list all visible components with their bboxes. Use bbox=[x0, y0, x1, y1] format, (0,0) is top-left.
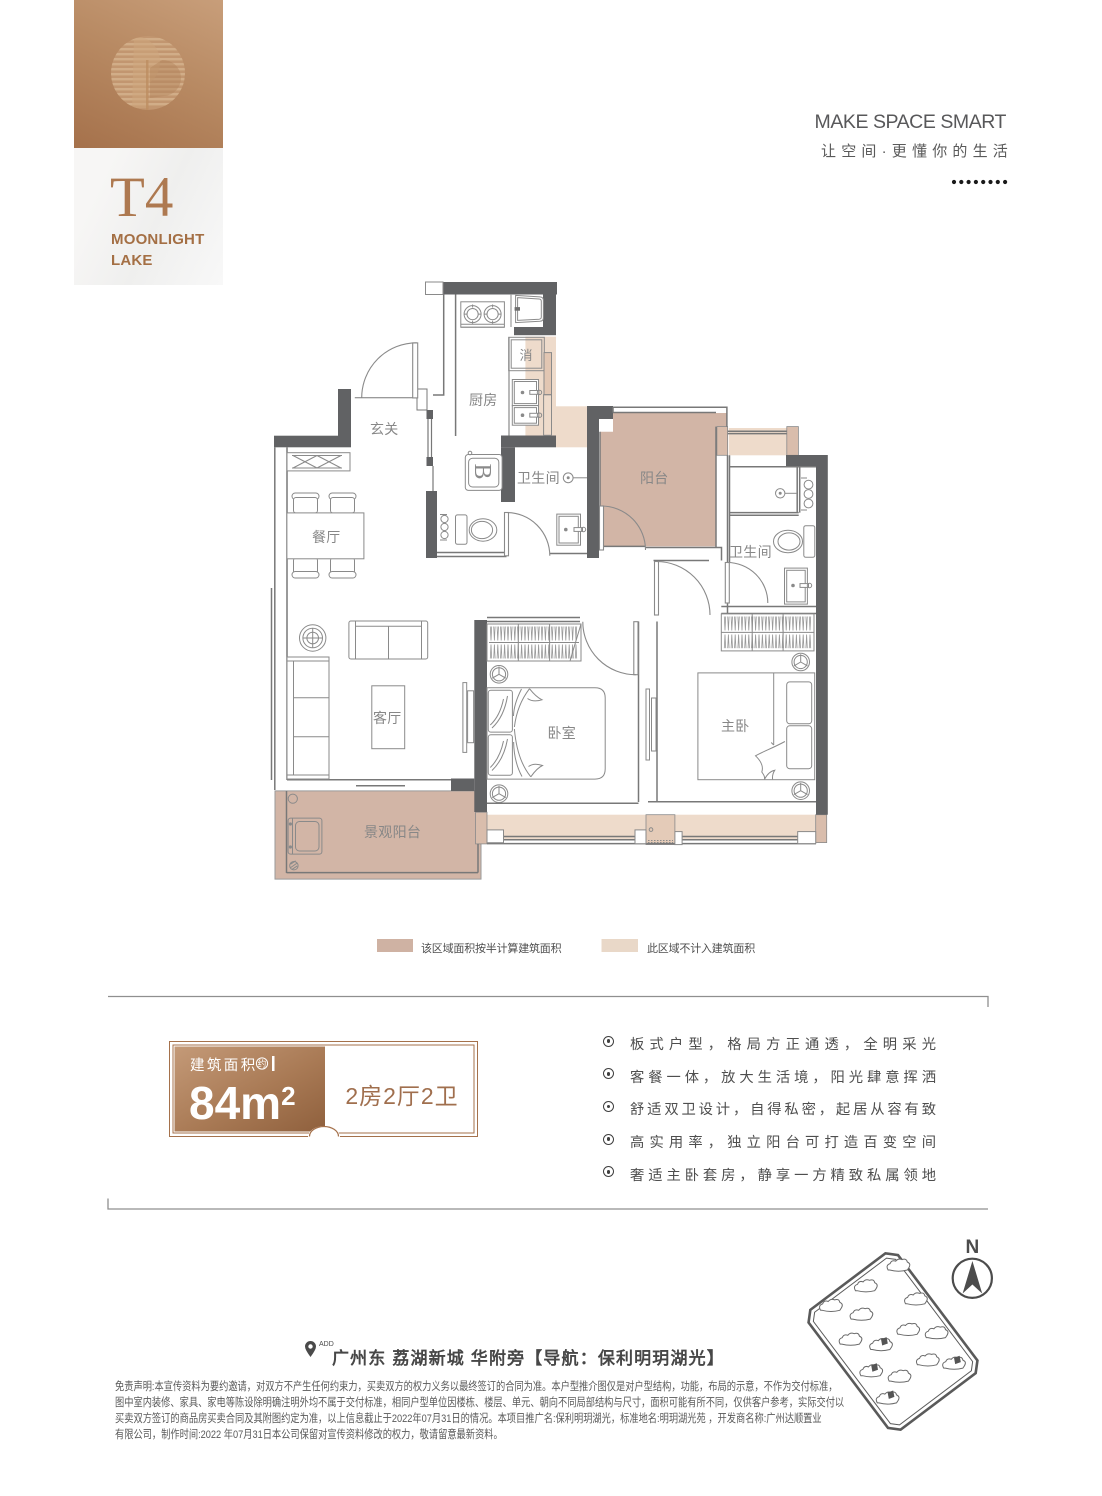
svg-text:阳台: 阳台 bbox=[640, 470, 669, 486]
svg-text:N: N bbox=[966, 1237, 980, 1258]
svg-text:B: B bbox=[469, 463, 495, 479]
svg-text:客厅: 客厅 bbox=[373, 710, 402, 726]
svg-text:主卧: 主卧 bbox=[721, 718, 750, 734]
svg-text:餐厅: 餐厅 bbox=[312, 529, 341, 545]
svg-text:约: 约 bbox=[258, 1059, 267, 1069]
svg-text:卫生间: 卫生间 bbox=[517, 470, 560, 486]
svg-text:厨房: 厨房 bbox=[469, 392, 498, 408]
svg-text:消: 消 bbox=[520, 348, 533, 363]
svg-text:卫生间: 卫生间 bbox=[729, 544, 772, 560]
svg-text:玄关: 玄关 bbox=[370, 421, 399, 437]
svg-text:卧室: 卧室 bbox=[548, 725, 577, 741]
svg-text:景观阳台: 景观阳台 bbox=[364, 824, 421, 840]
